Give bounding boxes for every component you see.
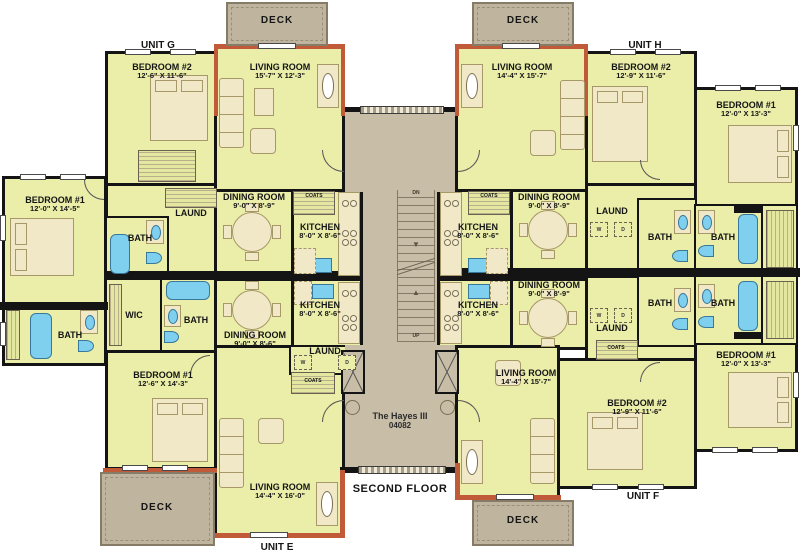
stairs-down-arrow: ▼ [412,240,420,249]
stove-burner [444,324,451,331]
bed-symbol [152,398,208,462]
label-h-dining: DINING ROOM9'-0" X 8'-9" [518,192,580,211]
toilet-symbol [672,318,688,330]
sink-basin [444,200,451,207]
toilet-symbol [146,252,162,264]
label-f-bedroom2: BEDROOM #212'-9" X 11'-6" [607,398,667,417]
dryer: D [614,308,632,323]
chair-symbol [272,303,281,317]
stove-burner [444,239,451,246]
vanity [674,210,691,234]
plan-title-line2: 04082 [372,421,427,430]
floor-label: SECOND FLOOR [353,483,448,496]
water-heater-right [440,400,455,415]
label-f-bedroom1: BEDROOM #112'-0" X 13'-3" [716,350,776,369]
sink-basin [452,200,459,207]
pillow [777,156,789,178]
tv-screen-icon [321,491,334,518]
label-f-coats: COATS [607,346,624,352]
tv-screen-icon [466,449,479,476]
bathtub-symbol [30,313,52,359]
closet-shelving [766,281,794,339]
sink-basin [342,290,349,297]
fridge [486,248,508,274]
sofa-symbol [560,80,585,150]
deck-slider [502,43,540,49]
stairs-up-label: UP [413,334,420,340]
stove-burner [350,230,357,237]
pillow [777,377,789,398]
chair-symbol [541,338,555,347]
window [712,447,738,453]
stove-burner [350,324,357,331]
deck-slider [258,43,296,49]
accent-h-left [455,44,459,116]
label-e-laund: LAUND [309,346,341,356]
toilet-symbol [672,250,688,262]
stove-burner [342,324,349,331]
label-deck-g: DECK [261,15,293,27]
pillow [597,91,618,103]
label-h-bedroom1: BEDROOM #112'-0" X 13'-3" [716,100,776,119]
washer: W [294,355,312,370]
armchair-symbol [530,130,556,156]
label-deck-h: DECK [507,15,539,27]
balcony-railing-bottom [358,466,446,474]
sink-symbol [151,225,161,240]
dryer: D [338,355,356,370]
stove-burner [444,230,451,237]
label-h-bath2: BATH [711,232,735,242]
chase-right [435,350,459,394]
stove-burner [342,239,349,246]
bed-symbol [10,218,74,276]
window [793,372,799,398]
chair-symbol [568,311,577,325]
label-unit-g: UNIT G [141,40,175,52]
tv-cabinet [461,64,483,108]
window [592,484,618,490]
accent-f-living-left [455,463,460,500]
pillow [157,403,178,415]
dryer: D [614,222,632,237]
deck-slider [496,494,534,500]
chair-symbol [541,250,555,259]
label-g-bath: BATH [128,233,152,243]
sofa-symbol [530,418,555,484]
chair-symbol [568,223,577,237]
vanity [698,210,715,234]
sofa-symbol [219,418,244,488]
party-wall-left-wing [0,302,108,310]
label-deck-f: DECK [507,515,539,527]
toilet-symbol [78,340,94,352]
pillow [617,417,638,429]
washer: W [590,308,608,323]
chair-symbol [223,303,232,317]
label-g-bedroom1: BEDROOM #112'-0" X 14'-5" [25,195,85,214]
vanity [164,305,181,327]
sink-basin [350,290,357,297]
stove-burner [444,315,451,322]
pillow [592,417,613,429]
label-f-bath1: BATH [648,298,672,308]
accent-g-right [341,44,345,116]
label-g-living: LIVING ROOM15'-7" X 12'-3" [250,62,311,81]
armchair-symbol [258,418,284,444]
dining-table-symbol [232,290,272,330]
accent-g-left [214,44,218,116]
pillow [15,223,27,245]
staircase [397,190,435,342]
bed-symbol [728,125,792,183]
pillow [777,402,789,423]
label-f-laund: LAUND [596,323,628,333]
plan-title: The Hayes III 04082 [372,411,427,431]
chair-symbol [223,225,232,239]
vanity [674,288,691,312]
closet-shelving [6,310,20,360]
label-h-kitchen: KITCHEN8'-0" X 8'-6" [457,222,499,241]
sink-basin [452,290,459,297]
bedroom-closet [138,150,196,182]
label-unit-f: UNIT F [627,491,659,503]
chair-symbol [519,311,528,325]
label-h-laund: LAUND [596,206,628,216]
bed-symbol [728,372,792,428]
label-g-bedroom2: BEDROOM #212'-6" X 11'-6" [132,62,192,81]
tv-screen-icon [466,73,479,100]
sink-symbol [702,215,712,230]
window [122,465,148,471]
bathtub-symbol [738,214,758,264]
vanity [80,310,98,334]
window [0,215,6,241]
window [638,484,664,490]
label-h-bedroom2: BEDROOM #212'-9" X 11'-6" [611,62,671,81]
label-f-living: LIVING ROOM14'-4" X 15'-7" [496,368,557,387]
tv-cabinet [461,440,483,484]
label-g-coats: COATS [305,194,322,200]
bathtub-symbol [166,281,210,300]
label-e-wic: WIC [125,310,143,320]
bed-symbol [587,412,643,470]
sofa-symbol [219,78,244,148]
label-unit-h: UNIT H [628,40,661,52]
label-e-bedroom1: BEDROOM #112'-6" X 14'-3" [133,370,193,389]
sink-basin [444,290,451,297]
dishwasher [468,284,490,299]
armchair-symbol [250,128,276,154]
stove-burner [350,239,357,246]
sink-symbol [168,309,178,324]
bed-symbol [150,75,208,141]
pillow [182,403,203,415]
tub-alcove-wall [734,206,762,213]
label-f-kitchen: KITCHEN8'-0" X 8'-6" [457,300,499,319]
label-g-laund: LAUND [175,208,207,218]
window [60,174,86,180]
laundry-closet [165,188,217,208]
accent-e-living-right [340,470,345,538]
label-f-dining: DINING ROOM9'-0" X 8'-9" [518,280,580,299]
window [793,125,799,151]
label-unit-e: UNIT E [261,542,294,554]
plan-title-line1: The Hayes III [372,411,427,421]
label-h-living: LIVING ROOM14'-4" X 15'-7" [492,62,553,81]
dining-table-symbol [232,212,272,252]
stove-burner [452,324,459,331]
window [162,465,188,471]
dining-table-symbol [528,210,568,250]
pillow [777,130,789,152]
bathtub-symbol [738,281,758,331]
stairs-down-label: DN [412,191,419,197]
deck-slider [250,532,288,538]
toilet-symbol [164,331,179,343]
dishwasher [312,284,334,299]
toilet-symbol [698,316,714,328]
label-e-kitchen: KITCHEN8'-0" X 8'-6" [299,300,341,319]
common-hall-upper [345,110,455,192]
chair-symbol [272,225,281,239]
tv-cabinet [317,64,339,108]
x-brace-icon [437,352,457,392]
closet-shelving [766,210,794,268]
window [752,447,778,453]
dining-table-symbol [528,298,568,338]
label-f-bath2: BATH [711,298,735,308]
sink-symbol [85,315,95,330]
fridge [294,248,316,274]
pillow [155,80,177,92]
stairs-up-arrow: ▲ [412,288,420,297]
label-e-bath2: BATH [184,315,208,325]
pillow [15,249,27,271]
floor-plan: DN UP ▼ ▲ [0,0,800,556]
sink-basin [342,200,349,207]
stove-burner [342,230,349,237]
label-e-dining: DINING ROOM9'-0" X 8'-6" [224,330,286,349]
chair-symbol [245,252,259,261]
label-h-bath1: BATH [648,232,672,242]
tv-cabinet [316,482,338,526]
label-h-coats: COATS [480,194,497,200]
label-e-coats: COATS [304,379,321,385]
window [20,174,46,180]
window [755,85,781,91]
label-e-living: LIVING ROOM14'-4" X 16'-0" [250,482,311,501]
bed-symbol [592,86,648,162]
washer: W [590,222,608,237]
tv-screen-icon [322,73,335,100]
toilet-symbol [698,245,714,257]
water-heater-left [345,400,360,415]
sink-symbol [678,215,688,230]
tub-alcove-wall [734,332,762,339]
label-e-bath1: BATH [58,330,82,340]
coffee-table [254,88,274,116]
stove-burner [350,315,357,322]
label-g-kitchen: KITCHEN8'-0" X 8'-6" [299,222,341,241]
sink-basin [350,200,357,207]
sink-symbol [678,293,688,308]
pillow [622,91,643,103]
wic-shelving [109,284,122,346]
window [715,85,741,91]
pillow [181,80,203,92]
label-deck-e: DECK [141,502,173,514]
chair-symbol [245,281,259,290]
balcony-railing-top [360,106,444,114]
stove-burner [342,315,349,322]
chair-symbol [519,223,528,237]
label-g-dining: DINING ROOM9'-0" X 8'-9" [223,192,285,211]
